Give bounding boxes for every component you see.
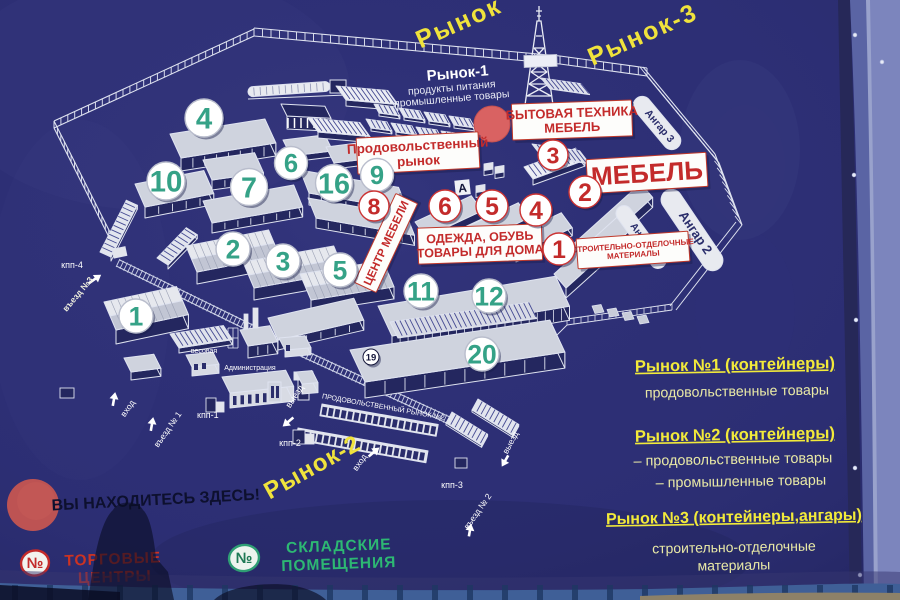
svg-text:кпп-2: кпп-2: [279, 438, 301, 448]
svg-text:– промышленные товары: – промышленные товары: [656, 473, 827, 492]
svg-text:11: 11: [407, 277, 435, 307]
svg-text:8: 8: [368, 193, 381, 219]
svg-text:5: 5: [333, 256, 348, 286]
svg-text:4: 4: [196, 103, 213, 136]
svg-text:Администрация: Администрация: [224, 365, 276, 372]
svg-text:кпп-3: кпп-3: [441, 480, 463, 490]
svg-text:2: 2: [578, 180, 592, 207]
svg-text:продовольственные товары: продовольственные товары: [645, 382, 829, 401]
svg-text:1: 1: [129, 302, 144, 332]
svg-text:А: А: [458, 181, 468, 196]
svg-text:весовая: весовая: [191, 348, 218, 355]
svg-text:3: 3: [276, 247, 291, 277]
svg-text:Рынок №2 (контейнеры): Рынок №2 (контейнеры): [635, 424, 835, 445]
svg-text:10: 10: [150, 166, 183, 199]
svg-text:4: 4: [529, 198, 543, 225]
svg-text:1: 1: [552, 237, 566, 264]
svg-text:кпп-1: кпп-1: [197, 410, 219, 420]
svg-text:12: 12: [474, 282, 503, 312]
svg-text:3: 3: [547, 142, 560, 168]
svg-text:кпп-4: кпп-4: [61, 260, 83, 270]
svg-text:20: 20: [467, 340, 496, 370]
svg-text:МЕБЕЛЬ: МЕБЕЛЬ: [544, 119, 600, 136]
svg-text:5: 5: [485, 194, 499, 221]
svg-text:16: 16: [318, 168, 350, 200]
svg-text:7: 7: [241, 172, 257, 204]
svg-text:№: №: [27, 555, 44, 572]
svg-text:строительно-отделочные: строительно-отделочные: [652, 538, 816, 557]
svg-text:9: 9: [370, 162, 384, 190]
svg-text:рынок: рынок: [397, 152, 441, 169]
svg-text:Рынок №1 (контейнеры): Рынок №1 (контейнеры): [635, 354, 835, 375]
svg-text:19: 19: [366, 352, 377, 363]
svg-text:6: 6: [284, 150, 298, 178]
svg-text:2: 2: [226, 235, 241, 265]
svg-text:№: №: [236, 550, 253, 567]
svg-text:материалы: материалы: [697, 556, 770, 573]
svg-text:6: 6: [438, 194, 452, 221]
